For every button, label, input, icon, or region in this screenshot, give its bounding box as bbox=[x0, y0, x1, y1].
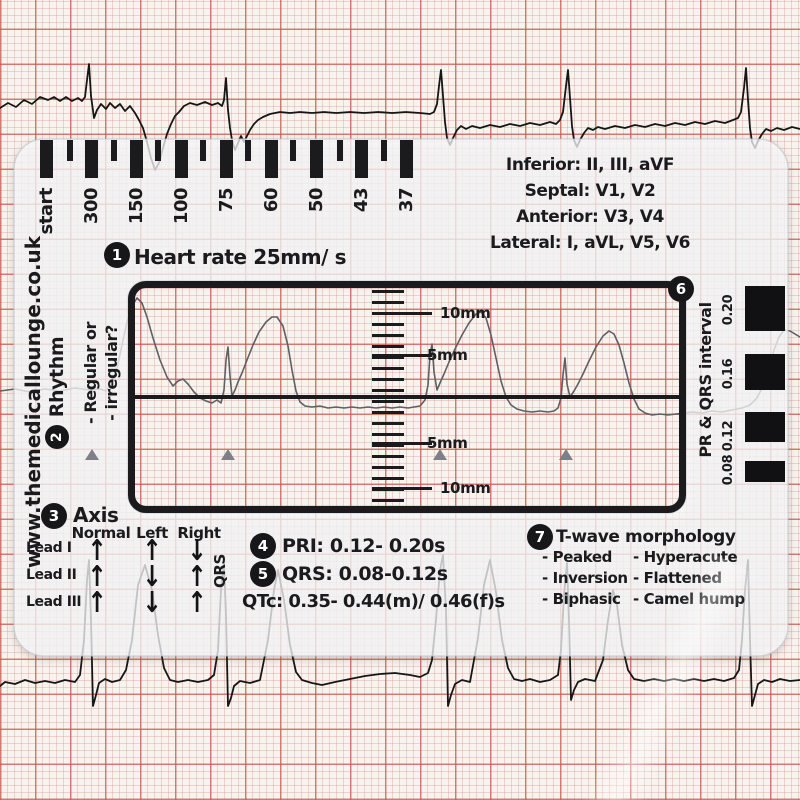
rate-tick-minor bbox=[245, 140, 251, 161]
t-wave-peaked: - Peaked bbox=[542, 548, 612, 566]
t-wave-biphasic: - Biphasic bbox=[542, 590, 621, 608]
pr-qrs-block-016 bbox=[745, 354, 785, 390]
t-wave-title: T-wave morphology bbox=[556, 527, 736, 547]
step-1-badge: 1 bbox=[104, 242, 130, 268]
territory-inferior: Inferior: II, III, aVF bbox=[468, 152, 712, 178]
rate-tick-minor bbox=[381, 140, 387, 161]
marker-triangle-icon bbox=[433, 449, 447, 460]
rate-tick-100 bbox=[175, 140, 188, 178]
axis-lead-3: Lead III bbox=[26, 594, 81, 610]
mm-tick-5-top bbox=[372, 354, 432, 357]
pr-qrs-block-012 bbox=[745, 412, 785, 442]
rate-tick-37 bbox=[400, 140, 413, 178]
marker-triangle-icon bbox=[559, 449, 573, 460]
rate-tick-start bbox=[40, 140, 53, 178]
marker-triangle-icon bbox=[221, 449, 235, 460]
axis-lead-1: Lead I bbox=[26, 540, 72, 556]
rate-tick-minor bbox=[67, 140, 73, 161]
territory-anterior: Anterior: V3, V4 bbox=[468, 204, 712, 230]
rate-tick-43 bbox=[355, 140, 368, 178]
pr-qrs-value: 0.16 bbox=[721, 352, 737, 396]
amplitude-mm-ruler bbox=[372, 290, 404, 506]
axis-arrow: ↓ bbox=[142, 587, 161, 620]
pr-qrs-value: 0.20 bbox=[721, 288, 737, 332]
rhythm-regular-label: - Regular or bbox=[81, 308, 99, 438]
territory-lateral: Lateral: I, aVL, V5, V6 bbox=[468, 230, 712, 256]
rate-label: 50 bbox=[306, 188, 328, 248]
rate-tick-150 bbox=[130, 140, 143, 178]
rhythm-irregular-label: - irregular? bbox=[102, 308, 120, 438]
step-6-badge: 6 bbox=[668, 276, 694, 302]
mm-label-5-top: 5mm bbox=[427, 346, 468, 364]
mm-tick-10-bottom bbox=[372, 487, 432, 490]
step-3-badge: 3 bbox=[41, 503, 67, 529]
rate-tick-minor bbox=[111, 140, 117, 161]
mm-tick-10-top bbox=[372, 312, 432, 315]
qrs-interval-label: QRS: 0.08-0.12s bbox=[282, 563, 448, 585]
step-2-badge: 2 bbox=[45, 425, 69, 449]
rate-label: 60 bbox=[261, 188, 283, 248]
rate-label: 43 bbox=[351, 188, 373, 248]
qtc-interval-label: QTc: 0.35- 0.44(m)/ 0.46(f)s bbox=[242, 591, 505, 612]
isoelectric-baseline bbox=[135, 395, 681, 399]
axis-arrow: ↑ bbox=[87, 587, 106, 620]
mm-label-10-bottom: 10mm bbox=[440, 479, 491, 497]
rate-label: 150 bbox=[126, 188, 148, 248]
mm-tick-5-bottom bbox=[372, 442, 432, 445]
axis-qrs-label: QRS bbox=[211, 547, 229, 595]
t-wave-inversion: - Inversion bbox=[542, 569, 628, 587]
pr-qrs-scale-label: PR & QRS interval bbox=[696, 280, 720, 480]
lead-territories: Inferior: II, III, aVF Septal: V1, V2 An… bbox=[468, 152, 712, 256]
rate-label: 75 bbox=[216, 188, 238, 248]
axis-arrow: ↑ bbox=[187, 587, 206, 620]
rate-tick-75 bbox=[220, 140, 233, 178]
step-5-badge: 5 bbox=[250, 561, 276, 587]
pr-qrs-block-008 bbox=[745, 461, 785, 482]
rate-tick-60 bbox=[265, 140, 278, 178]
step-4-badge: 4 bbox=[250, 533, 276, 559]
rate-tick-50 bbox=[310, 140, 323, 178]
rate-tick-300 bbox=[85, 140, 98, 178]
rhythm-label: Rhythm bbox=[46, 337, 68, 418]
rate-tick-minor bbox=[200, 140, 206, 161]
pri-interval-label: PRI: 0.12- 0.20s bbox=[282, 535, 445, 557]
pr-qrs-value: 0.08 bbox=[721, 448, 737, 492]
rhythm-group: 2 Rhythm bbox=[43, 328, 71, 458]
rate-label: 37 bbox=[396, 188, 418, 248]
step-7-badge: 7 bbox=[527, 524, 553, 550]
rate-tick-minor bbox=[155, 140, 161, 161]
rate-tick-minor bbox=[337, 140, 343, 161]
heart-rate-label: Heart rate 25mm/ s bbox=[134, 245, 346, 269]
rate-tick-minor bbox=[290, 140, 296, 161]
axis-lead-2: Lead II bbox=[26, 567, 76, 583]
rate-label: 300 bbox=[81, 188, 103, 248]
territory-septal: Septal: V1, V2 bbox=[468, 178, 712, 204]
marker-triangle-icon bbox=[85, 449, 99, 460]
mm-label-10-top: 10mm bbox=[440, 304, 491, 322]
pr-qrs-block-020 bbox=[745, 286, 785, 331]
website-url: www.themedicallounge.co.uk bbox=[21, 232, 43, 572]
photo-ecg-ruler-on-paper: start 300 150 100 75 60 50 43 37 1 Heart… bbox=[0, 0, 800, 800]
rate-label: 100 bbox=[171, 188, 193, 248]
